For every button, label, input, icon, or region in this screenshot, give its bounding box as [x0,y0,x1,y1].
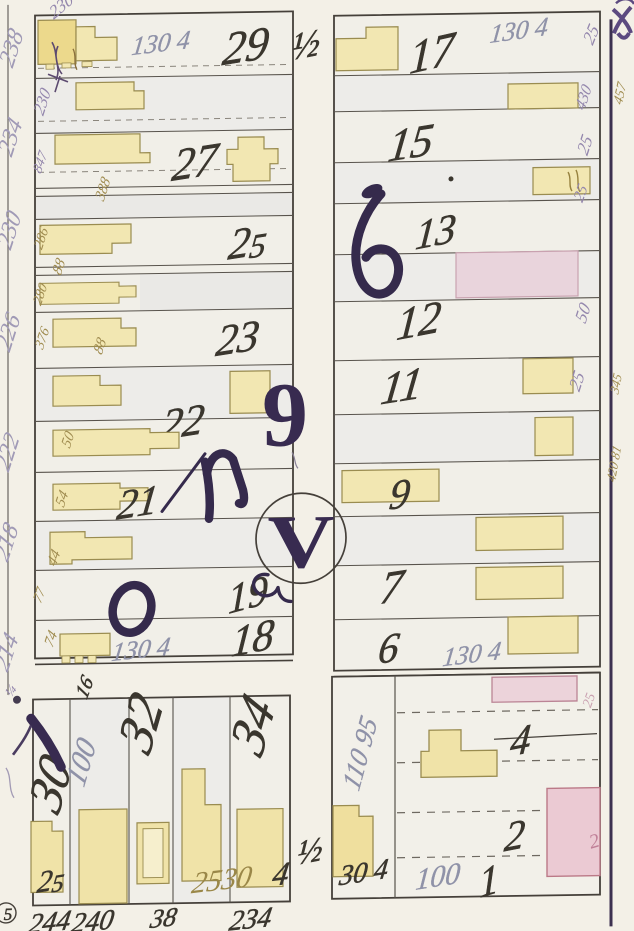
svg-text:½: ½ [296,830,324,873]
svg-text:1: 1 [479,855,500,908]
svg-text:15: 15 [386,113,437,171]
svg-text:23: 23 [214,311,263,366]
svg-text:21: 21 [115,477,161,530]
svg-text:240: 240 [69,905,116,931]
svg-text:18: 18 [230,610,277,667]
svg-text:½: ½ [290,20,322,69]
svg-text:5: 5 [4,905,12,924]
svg-text:234: 234 [227,902,274,931]
svg-text:12: 12 [395,290,444,350]
svg-text:13: 13 [414,205,458,259]
svg-text:V: V [268,500,335,585]
svg-text:29: 29 [220,17,272,77]
svg-text:244: 244 [26,905,73,931]
svg-text:9: 9 [262,363,308,466]
svg-text:11: 11 [378,357,426,415]
